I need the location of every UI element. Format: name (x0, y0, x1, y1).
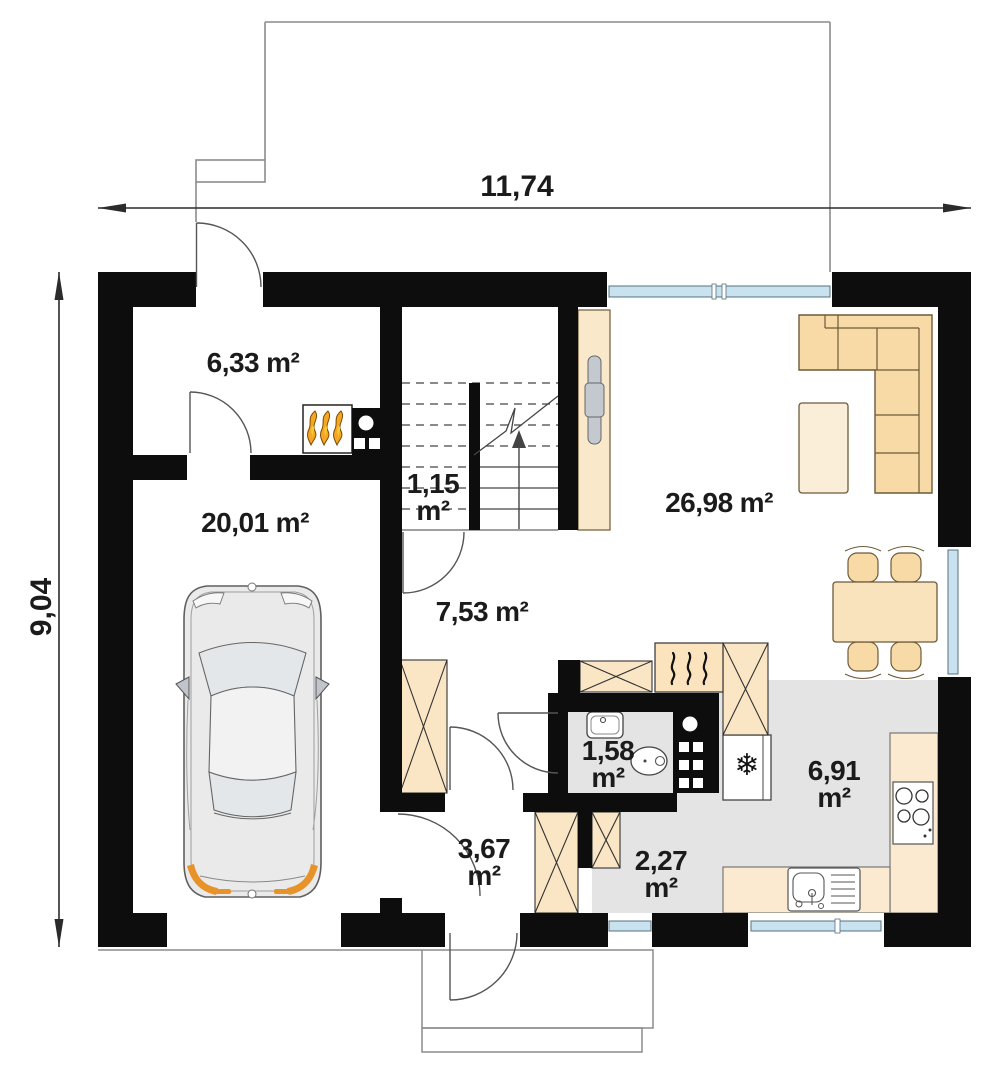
window-dining-right (938, 547, 971, 677)
room-label-hall: 7,53m² (436, 596, 529, 628)
cabinet-x (723, 643, 768, 735)
coffee-table (799, 403, 848, 493)
flue-block (673, 693, 719, 793)
cabinet-x (580, 661, 652, 692)
room-area-unit: m² (407, 497, 460, 524)
car-roof (209, 687, 296, 780)
fridge-snowflake-icon: ❄ (734, 751, 759, 781)
chair (848, 553, 878, 582)
room-label-living-room: 26,98m² (665, 487, 773, 519)
dining-table (833, 582, 937, 642)
entry-steps (98, 950, 653, 1052)
stair-stringer (469, 383, 480, 530)
room-label-corridor: 2,27m² (635, 847, 688, 901)
boiler-icon (303, 405, 352, 453)
flue-block (352, 408, 380, 455)
toilet-icon (631, 747, 667, 775)
window-living-top (607, 272, 832, 307)
room-area-unit: m² (740, 487, 773, 518)
chair (891, 553, 921, 582)
chair (848, 642, 878, 671)
room-area-unit: m² (276, 507, 309, 538)
width-dimension-label: 11,74 (480, 170, 553, 204)
room-area-value: 20,01 (201, 507, 269, 538)
cabinet-x (535, 812, 578, 913)
kitchen-sink-icon (788, 868, 860, 911)
room-area-unit: m² (266, 347, 299, 378)
room-label-entry-hall: 3,67m² (458, 835, 511, 889)
room-area-unit: m² (582, 764, 635, 791)
room-area-value: 6,33 (207, 347, 260, 378)
floor-plan-page: 11,74 9,04 6,33m² 20,01m² 1,15m² 7,53m² … (0, 0, 999, 1080)
cabinet-x (400, 660, 447, 793)
tv-stand-icon (585, 383, 604, 417)
cabinet-x (592, 812, 620, 868)
room-area-unit: m² (495, 596, 528, 627)
room-label-garage: 20,01m² (201, 507, 309, 539)
room-label-boiler-room: 6,33m² (207, 347, 300, 379)
room-label-staircase: 1,15m² (407, 470, 460, 524)
cooktop-icon (893, 782, 933, 844)
room-area-unit: m² (635, 874, 688, 901)
window-kitchen-bottom (748, 913, 884, 947)
room-area-unit: m² (458, 862, 511, 889)
room-area-value: 7,53 (436, 596, 489, 627)
chair (891, 642, 921, 671)
door-boiler-exterior (197, 223, 262, 287)
room-label-kitchen: 6,91m² (808, 757, 861, 811)
room-area-unit: m² (808, 784, 861, 811)
terrace-outline (196, 22, 830, 272)
room-label-toilet: 1,58m² (582, 737, 635, 791)
room-area-value: 26,98 (665, 487, 733, 518)
car-icon (176, 583, 329, 898)
boiler-room-fixtures (303, 405, 352, 453)
window-corridor-bottom (608, 913, 652, 947)
fireplace-icon (655, 643, 723, 692)
door-main-entrance (450, 933, 517, 1000)
floor-plan-drawing (0, 0, 999, 1080)
height-dimension-label: 9,04 (25, 578, 59, 636)
